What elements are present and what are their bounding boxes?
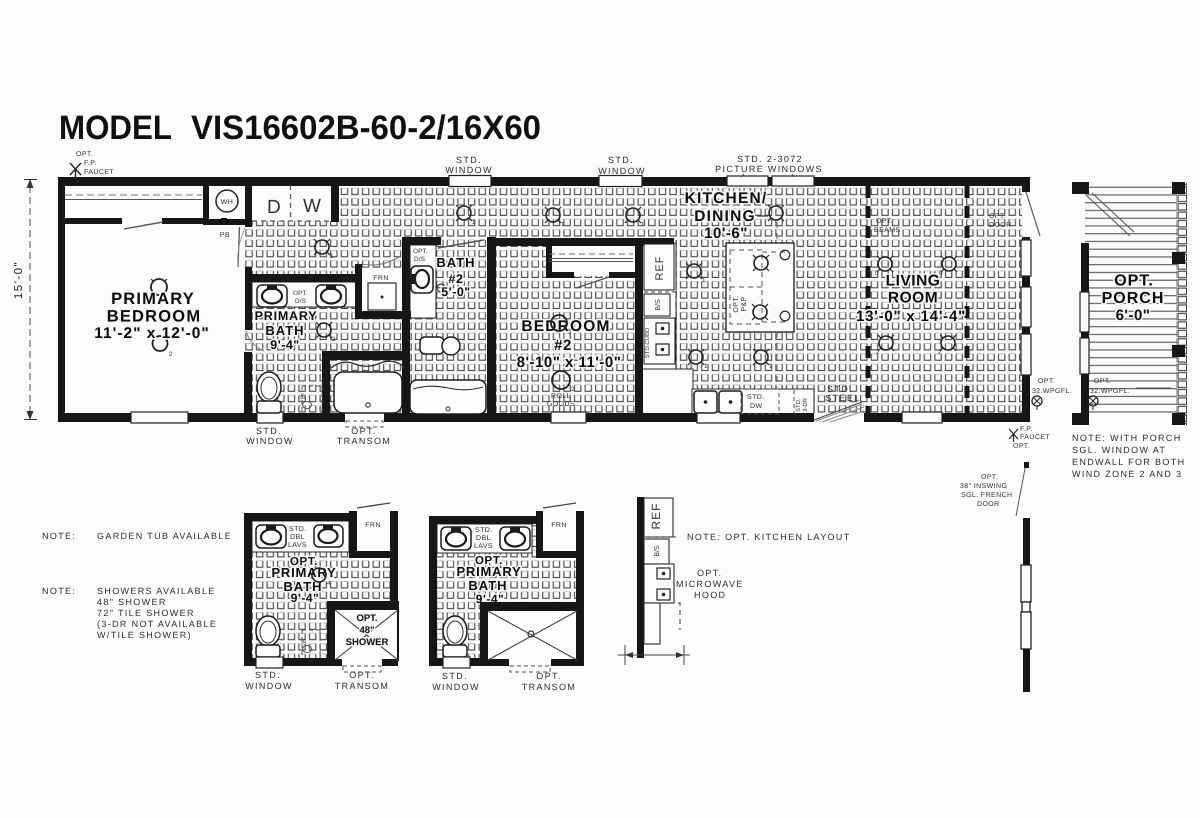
svg-text:OPT.: OPT. [351, 426, 376, 436]
svg-text:VIS16602B-60-2/16X60: VIS16602B-60-2/16X60 [191, 109, 541, 147]
svg-text:OPT.: OPT. [1114, 273, 1154, 290]
svg-text:DOOR: DOOR [977, 501, 1000, 508]
svg-text:REF: REF [654, 256, 666, 281]
svg-text:1: 1 [702, 277, 706, 284]
svg-text:PRIMARY: PRIMARY [255, 309, 318, 323]
svg-text:STD.CUBD: STD.CUBD [644, 327, 651, 358]
svg-text:STD.: STD. [289, 526, 307, 533]
svg-text:NOTE:: NOTE: [42, 531, 76, 541]
svg-text:SGL. FRENCH: SGL. FRENCH [961, 492, 1012, 499]
svg-text:DW: DW [750, 403, 762, 410]
svg-text:D: D [267, 197, 281, 218]
svg-text:48": 48" [359, 625, 374, 636]
svg-text:OPT.: OPT. [349, 670, 374, 680]
svg-text:OPT.: OPT. [989, 213, 1006, 220]
svg-text:72" TILE SHOWER: 72" TILE SHOWER [97, 608, 195, 618]
svg-text:13'-0" x 14'-4": 13'-0" x 14'-4" [856, 308, 966, 325]
svg-text:1: 1 [472, 219, 476, 226]
svg-text:OPT.: OPT. [536, 671, 561, 681]
svg-text:OPT.: OPT. [293, 290, 308, 297]
svg-text:WINDOW: WINDOW [246, 436, 294, 446]
svg-text:REF: REF [649, 503, 663, 530]
svg-text:P&P: P&P [741, 296, 748, 311]
svg-text:STD. 2-3072: STD. 2-3072 [737, 154, 803, 164]
svg-text:BATH: BATH [436, 255, 475, 270]
svg-text:GARDEN TUB AVAILABLE: GARDEN TUB AVAILABLE [97, 531, 232, 541]
svg-text:FAUCET: FAUCET [1020, 434, 1050, 441]
svg-text:(3-DR NOT AVAILABLE: (3-DR NOT AVAILABLE [97, 619, 217, 629]
svg-text:DBL: DBL [476, 535, 491, 542]
svg-text:BATH: BATH [468, 578, 507, 593]
svg-text:WINDOW: WINDOW [445, 165, 493, 175]
svg-text:WINDOW: WINDOW [245, 681, 293, 691]
svg-text:STD.: STD. [456, 155, 482, 165]
svg-text:KITCHEN/: KITCHEN/ [685, 190, 768, 207]
svg-text:1: 1 [769, 363, 773, 370]
svg-text:OPT.: OPT. [76, 151, 93, 158]
svg-text:5'-0": 5'-0" [441, 285, 470, 299]
svg-text:10'-6": 10'-6" [704, 225, 748, 242]
svg-text:MICROWAVE: MICROWAVE [676, 579, 744, 589]
svg-text:OPT.: OPT. [876, 218, 893, 225]
svg-text:OPT.: OPT. [413, 248, 428, 255]
svg-text:OPT.: OPT. [733, 295, 740, 312]
svg-text:0: 0 [875, 270, 879, 277]
svg-text:#2: #2 [554, 337, 572, 354]
svg-text:PRIMARY: PRIMARY [271, 565, 336, 580]
svg-text:OPT.: OPT. [1013, 443, 1030, 450]
svg-text:FRN: FRN [373, 275, 389, 282]
svg-text:D/S: D/S [295, 298, 306, 305]
svg-text:DBL: DBL [290, 534, 305, 541]
svg-text:48" SHOWER: 48" SHOWER [97, 597, 167, 607]
svg-text:NOTE: WITH PORCH: NOTE: WITH PORCH [1072, 433, 1182, 443]
svg-text:SHOWERS AVAILABLE: SHOWERS AVAILABLE [97, 586, 216, 596]
svg-text:NOTE:: NOTE: [42, 586, 76, 596]
svg-text:W/TILE SHOWER): W/TILE SHOWER) [97, 630, 192, 640]
svg-text:TRANSOM: TRANSOM [522, 682, 576, 692]
svg-text:WINDOW: WINDOW [598, 166, 646, 176]
svg-text:GOODS: GOODS [547, 401, 575, 408]
svg-text:B/S: B/S [653, 545, 661, 557]
svg-text:STEEL: STEEL [825, 393, 860, 403]
svg-text:2: 2 [876, 349, 880, 356]
svg-text:LAVS: LAVS [474, 543, 493, 550]
svg-text:STD.: STD. [256, 426, 282, 436]
svg-text:OPT.: OPT. [1038, 378, 1055, 385]
svg-text:OPT.: OPT. [697, 568, 722, 578]
svg-text:OPT.: OPT. [356, 613, 377, 624]
svg-text:32.WPGFL.: 32.WPGFL. [1090, 388, 1130, 395]
svg-text:6'-0": 6'-0" [1116, 307, 1151, 324]
svg-text:ROOM: ROOM [888, 290, 938, 307]
svg-text:TRANSOM: TRANSOM [335, 681, 389, 691]
svg-text:PRIMARY: PRIMARY [111, 290, 195, 308]
svg-text:ENDWALL FOR BOTH: ENDWALL FOR BOTH [1072, 457, 1185, 467]
svg-text:#2: #2 [449, 272, 464, 286]
svg-text:9'-4": 9'-4" [291, 591, 319, 605]
svg-text:PICTURE WINDOWS: PICTURE WINDOWS [715, 164, 823, 174]
svg-text:PORCH: PORCH [1102, 290, 1165, 307]
svg-text:BEDROOM: BEDROOM [107, 308, 202, 326]
svg-text:1: 1 [704, 363, 708, 370]
svg-text:DINING: DINING [694, 208, 755, 225]
svg-text:MODEL: MODEL [59, 109, 172, 147]
svg-text:38" INSWING: 38" INSWING [960, 483, 1007, 490]
svg-text:PB: PB [220, 232, 230, 239]
svg-text:W: W [303, 196, 321, 217]
svg-text:3: 3 [568, 329, 572, 336]
svg-text:2: 2 [571, 386, 575, 393]
svg-text:WINDOW: WINDOW [432, 682, 480, 692]
svg-text:3-DR: 3-DR [802, 397, 809, 412]
svg-text:STD.: STD. [475, 527, 493, 534]
svg-text:WIND ZONE 2 AND 3: WIND ZONE 2 AND 3 [1072, 469, 1182, 479]
svg-text:FAUCET: FAUCET [84, 169, 114, 176]
svg-text:2: 2 [169, 351, 173, 358]
svg-text:TRANSOM: TRANSOM [337, 436, 391, 446]
svg-text:DOOR: DOOR [989, 222, 1012, 229]
svg-text:ROLL: ROLL [551, 393, 571, 400]
svg-text:4: 4 [327, 580, 331, 587]
svg-text:HOOD: HOOD [694, 590, 726, 600]
svg-text:2: 2 [938, 349, 942, 356]
svg-text:B: B [301, 639, 308, 643]
svg-text:32.WPGFL.: 32.WPGFL. [1032, 388, 1072, 395]
svg-text:B/S: B/S [654, 299, 662, 311]
svg-text:WH: WH [221, 199, 233, 206]
svg-text:15'-0": 15'-0" [13, 261, 25, 299]
svg-text:STD.: STD. [255, 670, 281, 680]
svg-text:FRN: FRN [365, 522, 381, 529]
svg-text:LIVING: LIVING [886, 273, 941, 290]
svg-text:2: 2 [332, 336, 336, 343]
svg-text:SHOWER: SHOWER [346, 637, 389, 648]
svg-text:STD.: STD. [747, 394, 765, 401]
svg-text:SGL. WINDOW AT: SGL. WINDOW AT [1072, 445, 1166, 455]
svg-text:BATH: BATH [265, 323, 304, 338]
svg-text:LAVS: LAVS [288, 542, 307, 549]
svg-text:1: 1 [561, 221, 565, 228]
svg-text:STD.: STD. [442, 671, 468, 681]
svg-text:NOTE: OPT. KITCHEN LAYOUT: NOTE: OPT. KITCHEN LAYOUT [687, 532, 851, 542]
svg-text:F.P.: F.P. [84, 160, 97, 167]
svg-text:FRN: FRN [551, 522, 567, 529]
svg-text:F.P.: F.P. [1020, 426, 1033, 433]
svg-text:STD.: STD. [608, 155, 634, 165]
svg-text:OPT.: OPT. [981, 474, 998, 481]
svg-text:D/S: D/S [414, 256, 425, 263]
svg-text:B: B [300, 395, 307, 399]
svg-text:PRIMARY: PRIMARY [456, 564, 521, 579]
svg-text:9'-4": 9'-4" [270, 338, 299, 352]
svg-text:OPT.: OPT. [1094, 378, 1111, 385]
svg-text:STD.: STD. [795, 398, 802, 412]
svg-text:1: 1 [330, 253, 334, 260]
svg-text:1: 1 [641, 221, 645, 228]
svg-text:BEAMS: BEAMS [874, 227, 901, 234]
svg-text:8'-10" x 11'-0": 8'-10" x 11'-0" [517, 354, 622, 371]
svg-text:11'-2" x 12'-0": 11'-2" x 12'-0" [94, 325, 210, 342]
